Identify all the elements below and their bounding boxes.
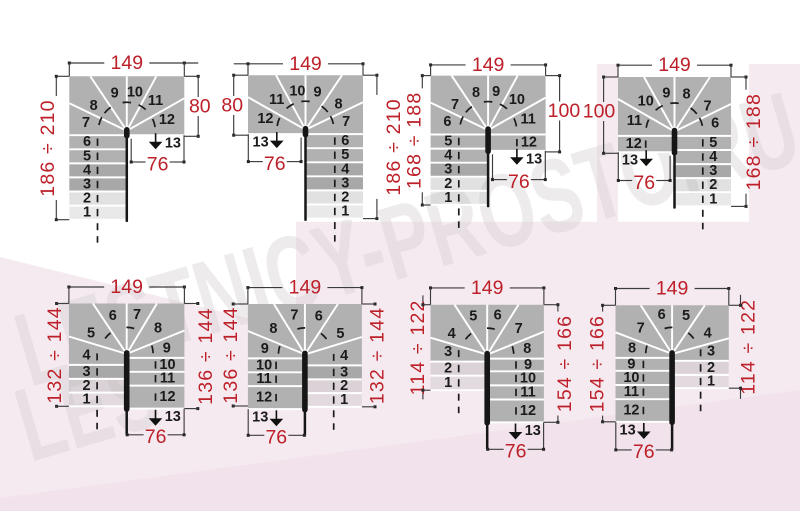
svg-text:149: 149 [656, 278, 689, 300]
svg-text:149: 149 [658, 54, 691, 76]
svg-text:76: 76 [265, 427, 287, 449]
svg-text:11: 11 [148, 93, 163, 109]
svg-text:11: 11 [256, 371, 271, 387]
svg-text:12: 12 [623, 403, 639, 419]
svg-text:154 ÷ 166: 154 ÷ 166 [587, 315, 609, 412]
svg-text:10: 10 [289, 84, 305, 100]
svg-text:6: 6 [109, 308, 117, 324]
svg-text:1: 1 [340, 392, 348, 408]
svg-text:8: 8 [472, 85, 480, 101]
svg-text:11: 11 [520, 384, 535, 400]
svg-text:13: 13 [253, 135, 269, 151]
svg-text:9: 9 [662, 85, 670, 101]
svg-text:4: 4 [448, 326, 456, 342]
svg-text:3: 3 [707, 343, 715, 359]
svg-text:7: 7 [515, 321, 523, 337]
svg-text:4: 4 [704, 325, 712, 341]
svg-text:3: 3 [444, 344, 452, 360]
svg-text:1: 1 [444, 190, 452, 206]
svg-text:13: 13 [622, 153, 638, 169]
svg-text:11: 11 [160, 371, 175, 387]
svg-text:149: 149 [111, 52, 144, 74]
svg-text:76: 76 [633, 172, 655, 194]
svg-text:9: 9 [111, 86, 119, 102]
svg-text:13: 13 [620, 422, 636, 438]
svg-text:136 ÷ 144: 136 ÷ 144 [195, 307, 217, 404]
svg-text:76: 76 [264, 153, 286, 175]
svg-text:8: 8 [683, 86, 691, 102]
svg-text:136 ÷ 144: 136 ÷ 144 [220, 306, 242, 403]
svg-text:7: 7 [82, 115, 90, 131]
svg-text:1: 1 [444, 375, 452, 391]
svg-text:8: 8 [90, 98, 98, 114]
svg-text:186 ÷ 210: 186 ÷ 210 [37, 99, 59, 196]
svg-text:80: 80 [189, 96, 211, 118]
svg-text:7: 7 [704, 99, 712, 115]
svg-text:76: 76 [633, 441, 655, 463]
svg-text:9: 9 [261, 341, 269, 357]
svg-text:80: 80 [221, 95, 243, 117]
svg-text:132 ÷ 144: 132 ÷ 144 [44, 306, 66, 403]
svg-text:149: 149 [471, 277, 504, 299]
svg-text:4: 4 [340, 348, 348, 364]
svg-text:11: 11 [521, 111, 536, 127]
svg-text:12: 12 [256, 390, 272, 406]
svg-text:149: 149 [289, 53, 322, 75]
svg-text:11: 11 [269, 92, 284, 108]
svg-text:9: 9 [163, 340, 171, 356]
svg-text:5: 5 [682, 308, 690, 324]
svg-text:13: 13 [165, 409, 181, 425]
svg-text:149: 149 [110, 276, 143, 298]
svg-text:9: 9 [314, 85, 322, 101]
svg-text:76: 76 [147, 153, 169, 175]
svg-text:8: 8 [269, 321, 277, 337]
svg-text:12: 12 [159, 389, 175, 405]
svg-text:5: 5 [469, 309, 477, 325]
svg-text:7: 7 [451, 97, 459, 113]
svg-text:12: 12 [520, 403, 536, 419]
svg-text:76: 76 [505, 441, 527, 463]
svg-text:11: 11 [627, 113, 642, 129]
svg-text:168 ÷ 188: 168 ÷ 188 [743, 93, 765, 190]
svg-text:1: 1 [341, 204, 349, 220]
svg-text:11: 11 [624, 384, 639, 400]
svg-text:10: 10 [509, 92, 525, 108]
svg-text:5: 5 [87, 325, 95, 341]
svg-text:1: 1 [707, 374, 715, 390]
svg-text:6: 6 [315, 308, 323, 324]
svg-text:186 ÷ 210: 186 ÷ 210 [383, 98, 405, 195]
svg-text:6: 6 [658, 307, 666, 323]
svg-text:1: 1 [709, 191, 717, 207]
svg-text:132 ÷ 144: 132 ÷ 144 [367, 307, 389, 404]
svg-text:114 ÷ 122: 114 ÷ 122 [738, 299, 760, 395]
svg-text:10: 10 [638, 94, 654, 110]
svg-text:7: 7 [133, 307, 141, 323]
svg-text:9: 9 [492, 84, 500, 100]
svg-text:76: 76 [508, 171, 530, 193]
svg-text:168 ÷ 188: 168 ÷ 188 [403, 92, 425, 189]
svg-text:8: 8 [628, 340, 636, 356]
svg-text:12: 12 [521, 135, 537, 151]
svg-text:8: 8 [523, 341, 531, 357]
svg-text:5: 5 [336, 326, 344, 342]
svg-text:100: 100 [583, 101, 616, 123]
svg-text:76: 76 [145, 426, 167, 448]
svg-text:7: 7 [637, 320, 645, 336]
svg-text:149: 149 [289, 277, 322, 299]
svg-text:6: 6 [711, 116, 719, 132]
svg-text:149: 149 [472, 54, 505, 76]
svg-text:4: 4 [83, 347, 91, 363]
svg-text:8: 8 [154, 320, 162, 336]
svg-text:7: 7 [342, 114, 350, 130]
svg-text:13: 13 [252, 410, 268, 426]
svg-text:100: 100 [548, 100, 581, 122]
svg-text:8: 8 [335, 97, 343, 113]
svg-text:10: 10 [127, 85, 143, 101]
svg-text:13: 13 [165, 136, 181, 152]
svg-text:12: 12 [626, 136, 642, 152]
svg-text:1: 1 [83, 392, 91, 408]
svg-text:6: 6 [494, 308, 502, 324]
svg-text:13: 13 [526, 151, 542, 167]
svg-text:7: 7 [290, 307, 298, 323]
svg-text:12: 12 [257, 111, 273, 127]
svg-text:6: 6 [443, 114, 451, 130]
svg-text:154 ÷ 166: 154 ÷ 166 [554, 315, 576, 412]
svg-text:1: 1 [83, 205, 91, 221]
svg-text:12: 12 [159, 112, 175, 128]
svg-text:114 ÷ 122: 114 ÷ 122 [407, 299, 429, 395]
svg-text:13: 13 [525, 423, 541, 439]
